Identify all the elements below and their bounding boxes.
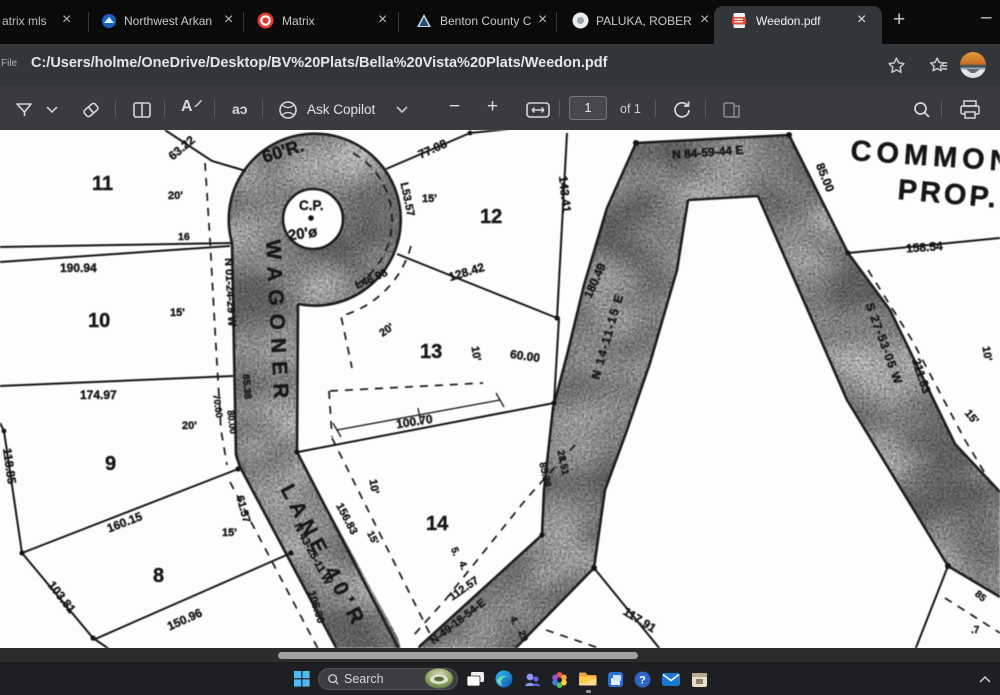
svg-text:15': 15' [422, 193, 437, 205]
svg-text:158.54: 158.54 [906, 239, 944, 256]
svg-text:14: 14 [426, 513, 449, 535]
svg-text:15': 15' [222, 527, 237, 539]
svg-text:85.38: 85.38 [240, 374, 253, 400]
svg-text:20': 20' [182, 420, 197, 432]
svg-text:20': 20' [168, 190, 183, 202]
svg-text:174.97: 174.97 [80, 388, 117, 402]
svg-text:16: 16 [178, 231, 190, 243]
svg-text:8: 8 [153, 565, 164, 587]
svg-text:9: 9 [105, 453, 116, 475]
svg-text:190.94: 190.94 [60, 261, 97, 275]
svg-text:?: ? [639, 675, 646, 687]
svg-text:13: 13 [420, 341, 442, 363]
svg-text:10: 10 [88, 310, 110, 332]
svg-text:12: 12 [480, 206, 502, 228]
svg-text:11: 11 [92, 173, 113, 195]
svg-text:.7: .7 [971, 625, 980, 636]
svg-text:C.P.: C.P. [299, 198, 324, 213]
svg-text:15': 15' [170, 307, 185, 319]
